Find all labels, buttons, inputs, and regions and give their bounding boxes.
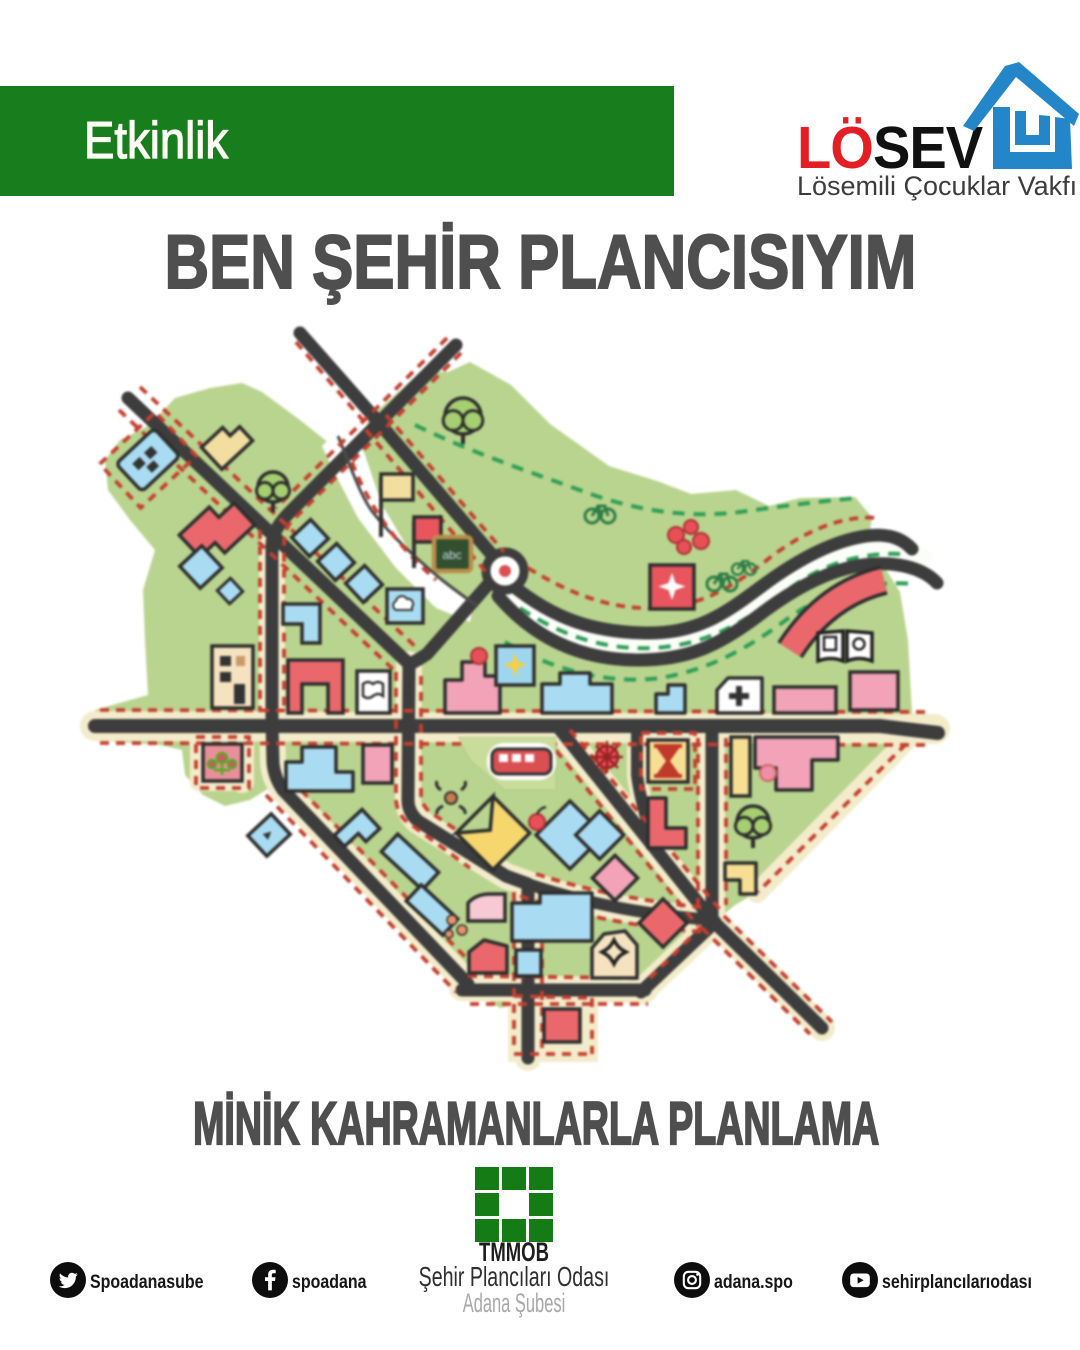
svg-text:abc: abc — [442, 548, 461, 562]
